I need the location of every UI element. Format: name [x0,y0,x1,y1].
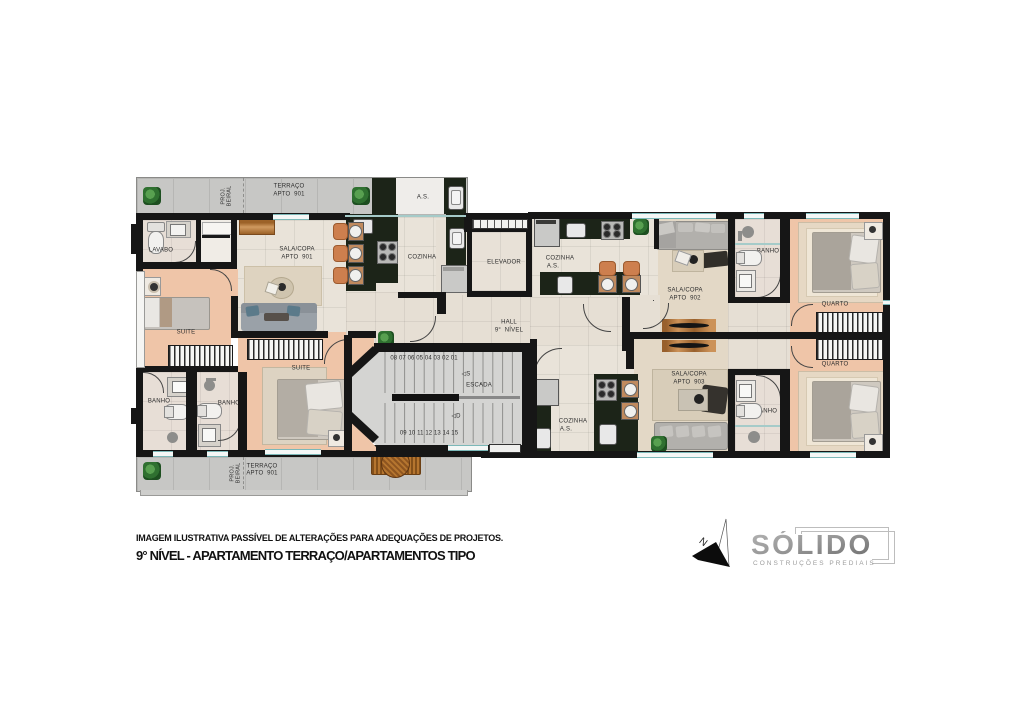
svg-text:N: N [697,536,709,549]
